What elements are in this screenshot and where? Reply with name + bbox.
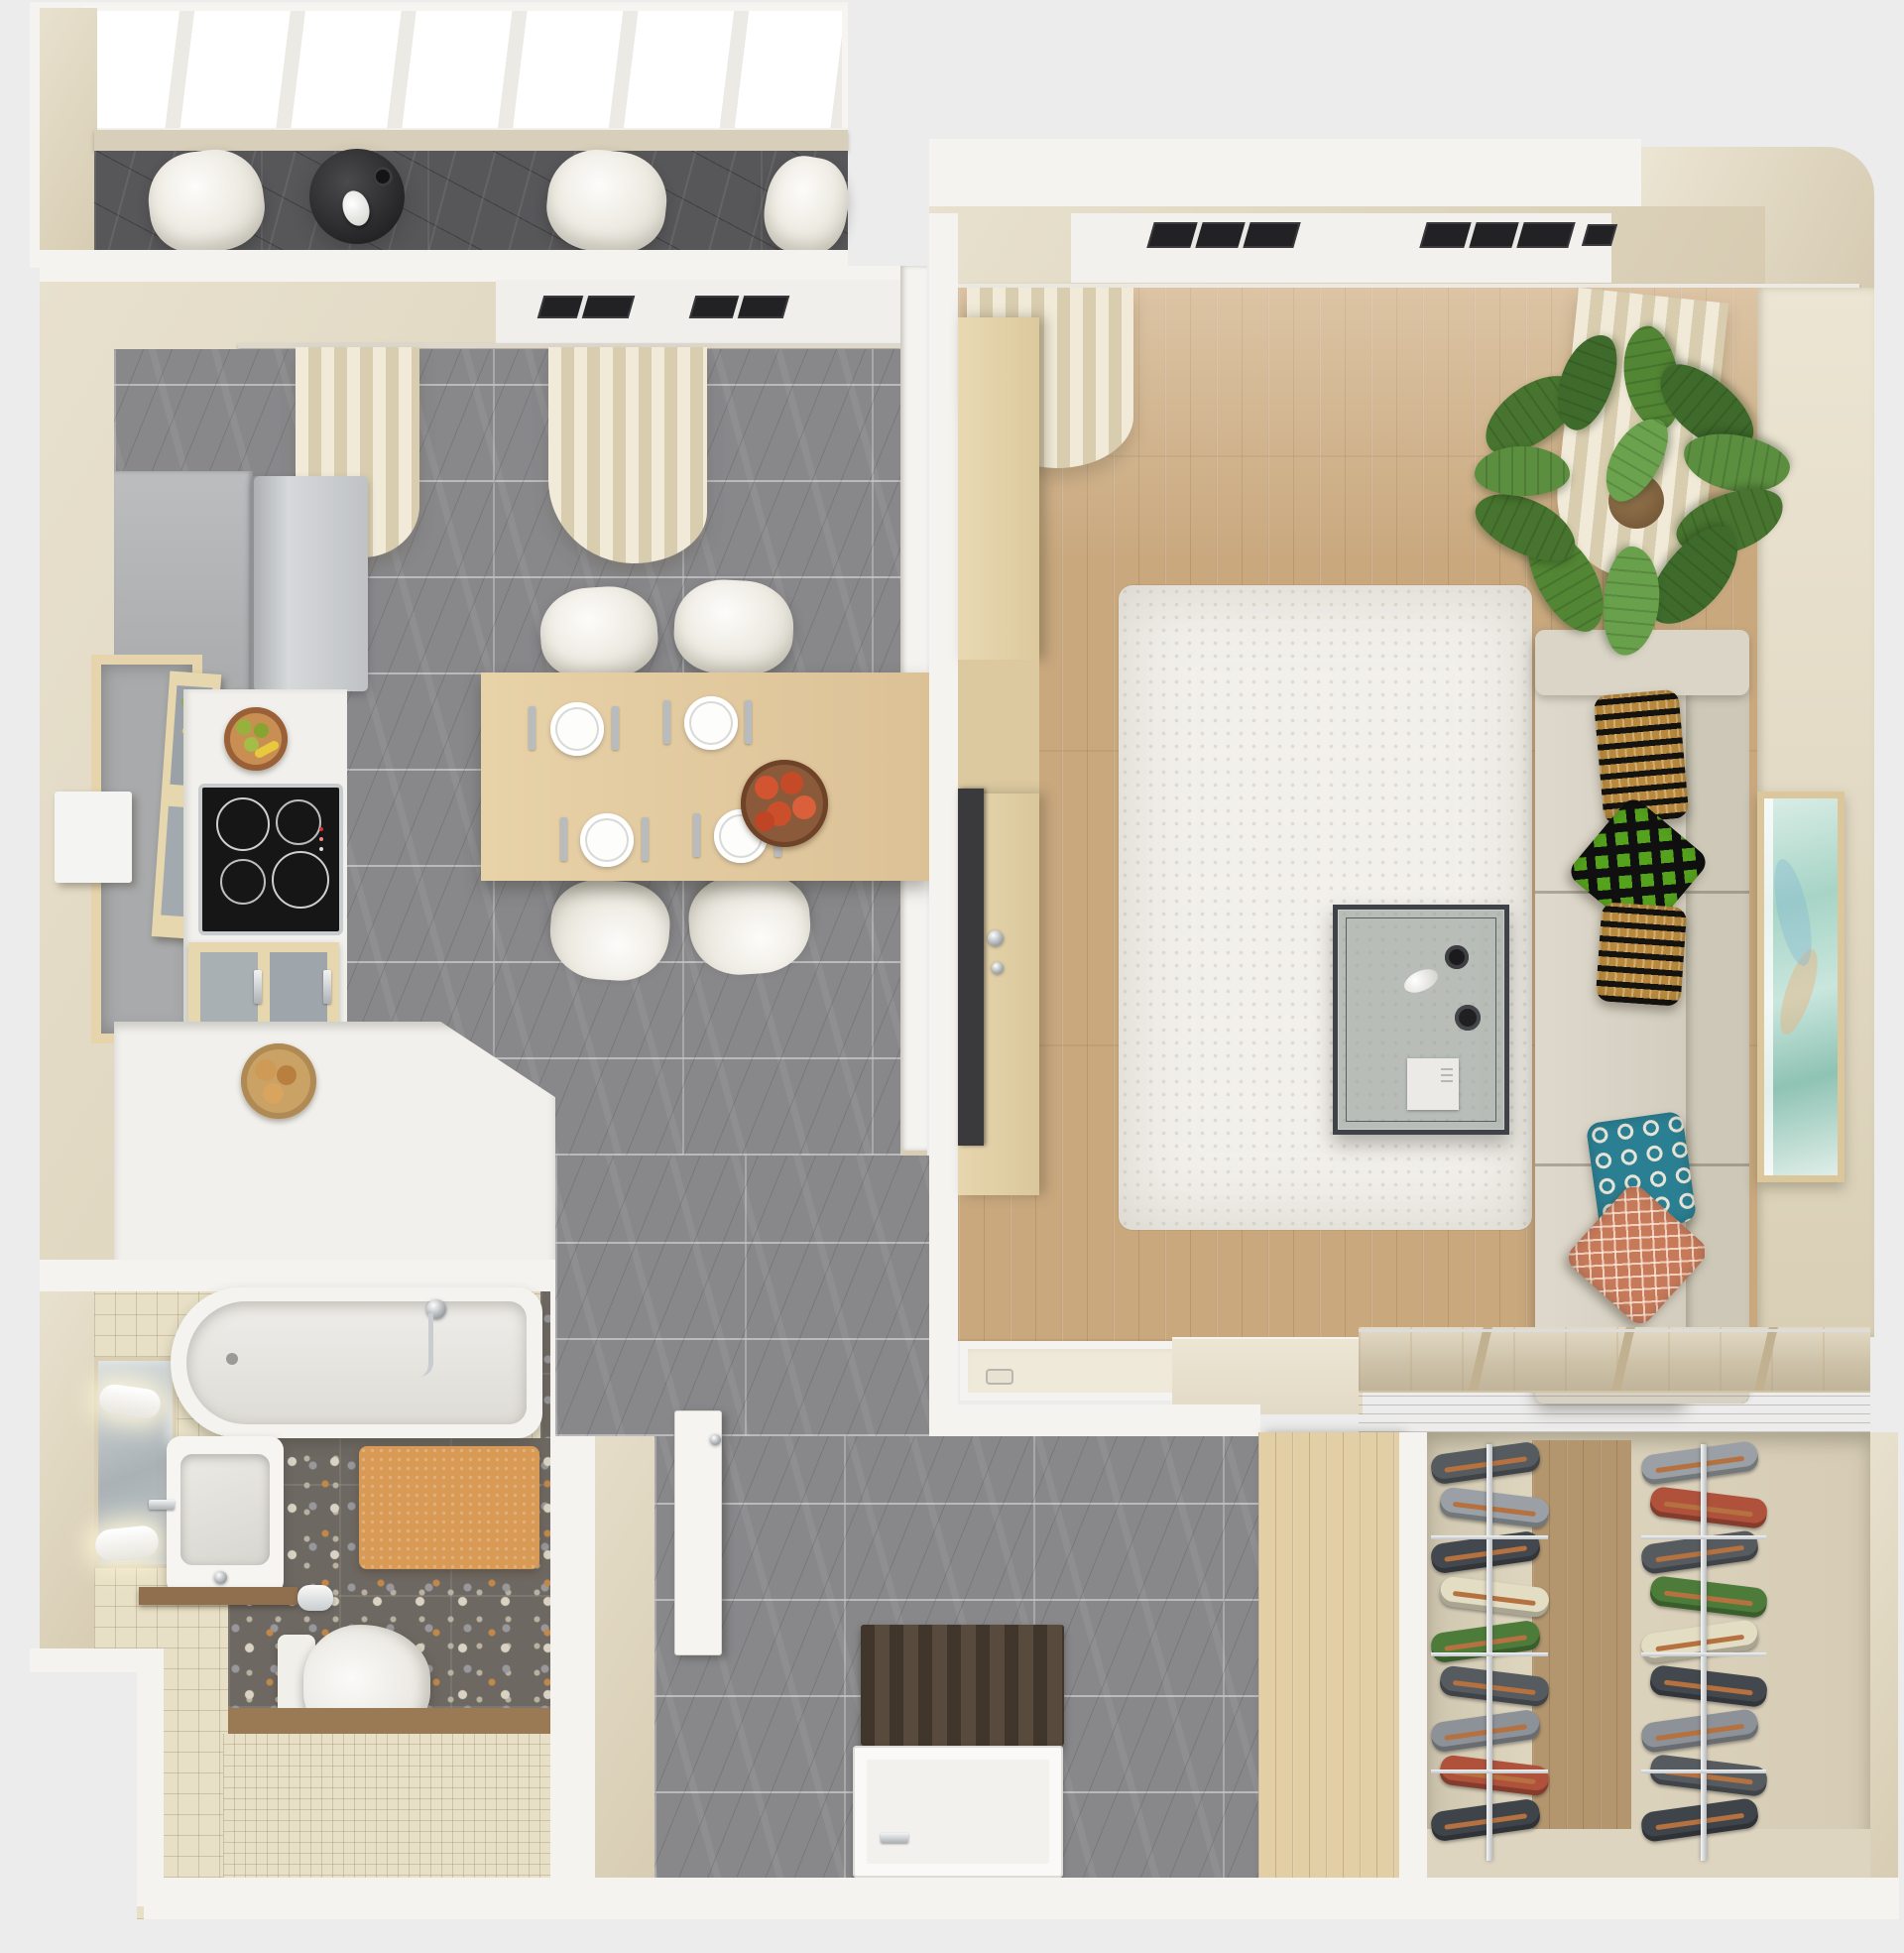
rack-crossbar: [1641, 1535, 1766, 1539]
bathroom-floor-bottom: [223, 1734, 590, 1878]
plant-leaf: [1545, 326, 1627, 437]
shoe-tower: [1431, 1444, 1548, 1861]
living-window-slot: [1582, 224, 1617, 246]
closet-floor-strip: [1532, 1440, 1631, 1862]
room-bathroom: [0, 1250, 694, 1944]
plant-leaf: [1599, 545, 1663, 658]
tray-drain: [986, 1369, 1013, 1385]
closet-wood-rail: [1359, 1391, 1870, 1432]
pillow-coral: [1563, 1180, 1712, 1329]
basin-tap: [149, 1500, 175, 1510]
shoe-pair: [1429, 1619, 1541, 1663]
sofa-armrest-bottom: [1535, 1338, 1749, 1404]
shoe-pair: [1439, 1754, 1551, 1796]
pillow-gold: [1593, 688, 1689, 824]
bottom-outer-wall: [144, 1878, 1899, 1919]
living-inner-wall-band: [929, 206, 1765, 288]
living-window-sill: [1071, 213, 1611, 283]
kitchen-sink-counter: [114, 1022, 555, 1282]
shoe-pair: [1649, 1575, 1769, 1619]
plant-leaf: [1644, 350, 1766, 465]
shoe-pair: [1429, 1529, 1541, 1574]
bread-basket: [241, 1043, 316, 1119]
plant-leaf: [1668, 477, 1792, 569]
floor-plan: [0, 0, 1904, 1953]
balcony-left-wall: [40, 8, 97, 256]
room-kitchen-dining: [0, 258, 952, 1309]
bath-shower-hose: [415, 1313, 433, 1377]
pillow-teal: [1586, 1111, 1698, 1235]
table-cup: [1445, 945, 1469, 969]
rack-crossbar: [1641, 1652, 1766, 1656]
plant-leaf: [1615, 322, 1686, 434]
pillow-gold: [1596, 902, 1688, 1007]
closet-left-band: [1399, 1432, 1427, 1898]
dining-chair: [672, 577, 796, 677]
plant-leaf: [1514, 518, 1619, 643]
tv: [958, 789, 984, 1146]
dining-table: [481, 672, 930, 881]
front-door-panel: [853, 1746, 1063, 1878]
living-bottom-wall: [929, 1404, 1260, 1436]
living-top-wall: [929, 139, 1641, 214]
rack-pole: [1487, 1444, 1492, 1861]
living-floor: [958, 288, 1757, 1341]
shoe-pair: [1639, 1797, 1759, 1843]
hall-left-wall: [595, 1291, 654, 1919]
sofa-seam: [1535, 891, 1749, 894]
hall-floor: [654, 1436, 1258, 1890]
plant-leaf: [1472, 360, 1593, 468]
striped-doormat: [861, 1625, 1064, 1746]
shoe-pair: [1429, 1440, 1541, 1485]
rack-pole: [1701, 1444, 1707, 1861]
bathroom-notch: [0, 1672, 137, 1920]
shoe-pair: [1649, 1754, 1769, 1797]
plant-pot: [1608, 473, 1664, 529]
shoe-pair: [1439, 1575, 1551, 1618]
plant-leaf: [1475, 446, 1570, 496]
sofa-armrest-top: [1535, 630, 1749, 695]
rack-crossbar: [1641, 1770, 1766, 1773]
plant-leaf: [1593, 408, 1680, 511]
tv-cabinet-knob: [992, 962, 1004, 974]
tv-cabinet-upper: [958, 317, 1039, 660]
rack-crossbar: [1431, 1535, 1548, 1539]
living-window-slot: [1146, 222, 1300, 248]
shoe-pair: [1439, 1664, 1551, 1707]
balcony-sill: [94, 130, 848, 151]
kitchen-curtain-right: [548, 347, 707, 563]
bathtub: [171, 1287, 542, 1438]
monstera-plant: [1492, 352, 1780, 650]
tv-cabinet-middle: [958, 660, 1039, 793]
table-shell: [1400, 965, 1441, 998]
kitchen-window-slot: [537, 296, 636, 318]
shoe-pair: [1639, 1708, 1759, 1754]
wall-art: [1757, 792, 1844, 1182]
shoe-pair: [1649, 1664, 1769, 1708]
coffee-table: [1333, 905, 1509, 1135]
bathroom-wood-shelf: [139, 1587, 297, 1605]
platform: [1172, 1337, 1363, 1414]
bathroom-right-wall: [550, 1280, 595, 1919]
shoe-pair: [1639, 1440, 1759, 1486]
fruit-bowl: [224, 707, 288, 771]
shoe-pair: [1649, 1486, 1769, 1529]
bathroom-wood-threshold: [228, 1708, 555, 1734]
skylight-windows: [84, 5, 848, 134]
plant-leaf: [1679, 427, 1794, 500]
plant-leaf: [1467, 480, 1587, 574]
shoe-pair: [1639, 1529, 1759, 1575]
sofa-back: [1686, 630, 1749, 1404]
living-curtain-rod: [942, 284, 1859, 289]
living-right-wall: [1757, 288, 1874, 1337]
washbasin: [167, 1436, 284, 1595]
hall-door-handle: [710, 1434, 721, 1445]
living-curtain-left: [967, 288, 1133, 468]
tomato-bowl: [741, 760, 828, 847]
closet-interior: [1427, 1432, 1870, 1890]
toilet-paper-holder: [297, 1585, 333, 1611]
living-window-slot: [1419, 222, 1575, 248]
table-card: [1407, 1058, 1459, 1110]
tv-cabinet-knob: [988, 930, 1004, 946]
shag-rug: [1119, 585, 1532, 1230]
induction-cooktop: [198, 784, 343, 935]
sofa-seats: [1535, 630, 1686, 1404]
closet-right-wall: [1870, 1432, 1898, 1898]
table-cup: [1455, 1005, 1481, 1031]
refrigerator: [251, 476, 368, 691]
kitchen-wall-box: [55, 792, 132, 883]
plant-leaf: [1634, 513, 1755, 641]
sofa-seam: [1535, 1163, 1749, 1166]
front-door-handle: [881, 1833, 908, 1843]
rack-crossbar: [1431, 1652, 1548, 1656]
shoe-pair: [1429, 1708, 1541, 1753]
sliding-glass-band: [1359, 1327, 1870, 1393]
shoe-pair: [1429, 1797, 1541, 1842]
bathroom-left-wall: [40, 1291, 94, 1678]
floor-tray: [960, 1341, 1210, 1401]
shoe-tower: [1641, 1444, 1766, 1861]
rack-crossbar: [1431, 1770, 1548, 1773]
pillow-green: [1566, 794, 1712, 940]
tv-cabinet-lower: [958, 793, 1039, 1195]
kitchen-window-slot: [689, 296, 790, 318]
bath-mat: [359, 1446, 539, 1569]
living-corner-wedge: [1641, 147, 1874, 288]
wardrobe-panel: [1258, 1432, 1399, 1898]
shoe-pair: [1639, 1619, 1759, 1664]
room-balcony: [0, 0, 892, 278]
shoe-pair: [1439, 1486, 1551, 1528]
balcony-cup: [373, 167, 393, 186]
living-curtain-right: [1549, 288, 1728, 585]
